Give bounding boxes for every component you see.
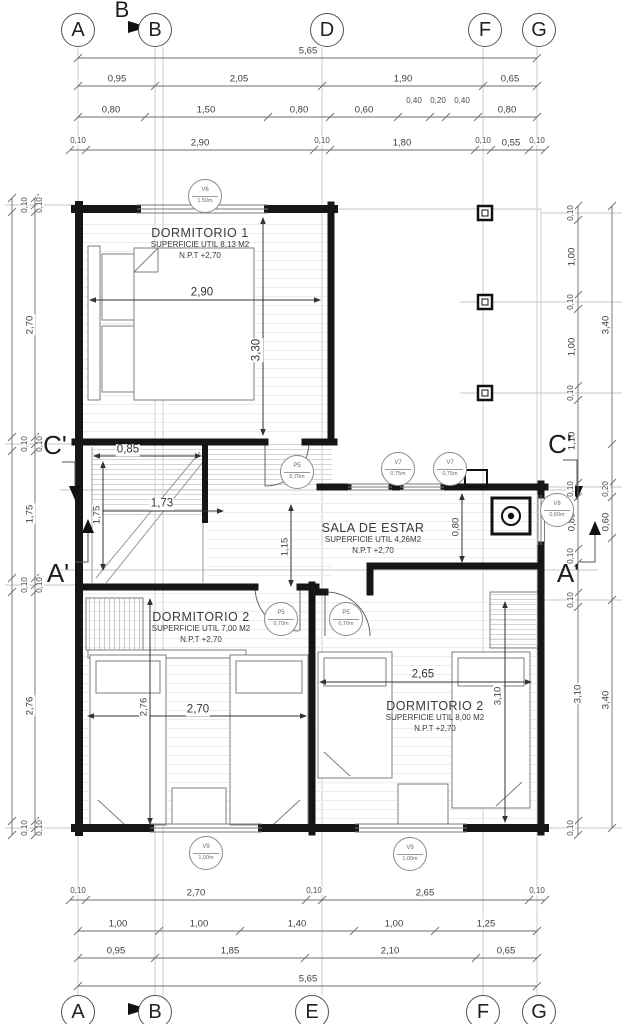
room-label-line: SUPERFICIE UTIL 7,00 M2 [152, 624, 250, 634]
dim-label: 3,10 [493, 686, 503, 707]
dim-label: 3,40 [601, 690, 611, 711]
room-label-line: N.P.T +2,70 [152, 635, 250, 645]
dim-label: 0,20 [602, 480, 610, 498]
dim-label: 0,10 [474, 137, 492, 145]
room-label-dormitorio-2: DORMITORIO 2SUPERFICIE UTIL 7,00 M2N.P.T… [152, 610, 250, 644]
dim-label: 0,80 [451, 517, 461, 538]
section-marker-A: A' [47, 560, 69, 586]
grid-bubble-top-D: D [310, 13, 344, 47]
dim-label: 2,65 [411, 669, 435, 681]
opening-tag-V7: V70,75m [433, 452, 467, 486]
room-label-line: N.P.T +2,70 [322, 546, 425, 556]
dim-label: 2,70 [186, 888, 207, 898]
dim-label: 0,10 [69, 887, 87, 895]
dim-label: 0,10 [36, 576, 44, 594]
grid-bubble-bottom-E: E [295, 995, 329, 1024]
room-label-line: DORMITORIO 1 [151, 226, 249, 240]
opening-tag-V7: V70,75m [381, 452, 415, 486]
section-marker-C: C' [548, 431, 572, 457]
grid-bubble-top-A: A [61, 13, 95, 47]
opening-tag-V6: V61.50m [188, 179, 222, 213]
dim-label: 2,76 [139, 697, 149, 718]
dim-label: 2,65 [415, 888, 436, 898]
dim-label: 0,85 [116, 444, 140, 456]
dim-label: 5,65 [298, 46, 319, 56]
dim-label: 1,73 [150, 498, 174, 510]
room-label-line: SALA DE ESTAR [322, 521, 425, 535]
dim-label: 0,60 [601, 512, 611, 533]
room-label-line: N.P.T +2,70 [386, 724, 484, 734]
dim-label: 0,10 [21, 435, 29, 453]
dim-label: 0,10 [69, 137, 87, 145]
opening-tag-P5: P50,70m [264, 602, 298, 636]
dim-label: 1,50 [196, 105, 217, 115]
dim-label: 0,95 [107, 74, 128, 84]
opening-tag-V9: V91,00m [189, 836, 223, 870]
dim-label: 1,90 [393, 74, 414, 84]
dim-label: 0,10 [567, 293, 575, 311]
dim-label: 1,00 [108, 919, 129, 929]
dim-label: 1,25 [476, 919, 497, 929]
dim-label: 0,10 [305, 887, 323, 895]
dim-label: 0,40 [453, 97, 471, 105]
dim-label: 0,10 [567, 480, 575, 498]
grid-bubble-top-G: G [522, 13, 556, 47]
dim-label: 2,10 [380, 946, 401, 956]
dim-label: 0,10 [567, 384, 575, 402]
dim-label: 0,95 [106, 946, 127, 956]
room-label-line: N.P.T +2,70 [151, 251, 249, 261]
grid-bubble-bottom-B: B [138, 995, 172, 1024]
dim-label: 0,10 [313, 137, 331, 145]
dim-label: 2,70 [186, 704, 210, 716]
room-label-line: DORMITORIO 2 [386, 699, 484, 713]
grid-bubble-bottom-G: G [522, 995, 556, 1024]
dim-label: 1,15 [280, 537, 290, 558]
dim-label: 3,30 [251, 338, 263, 362]
grid-bubble-top-B: B [138, 13, 172, 47]
dim-label: 0,10 [567, 204, 575, 222]
dim-label: 1,85 [220, 946, 241, 956]
dim-label: 0,40 [405, 97, 423, 105]
dim-label: 3,10 [573, 684, 583, 705]
dim-label: 0,10 [567, 819, 575, 837]
dim-label: 0,10 [528, 137, 546, 145]
dim-label: 2,05 [229, 74, 250, 84]
room-label-line: SUPERFICIE UTIL 8,00 M2 [386, 713, 484, 723]
dim-label: 0,20 [429, 97, 447, 105]
room-label-line: SUPERFICIE UTIL 4,26M2 [322, 535, 425, 545]
opening-tag-P5: P50,70m [329, 602, 363, 636]
dim-label: 1,00 [567, 247, 577, 268]
dim-label: 1,80 [392, 138, 413, 148]
opening-tag-V9: V91,00m [393, 837, 427, 871]
dim-label: 0,10 [36, 819, 44, 837]
dim-label: 0,80 [497, 105, 518, 115]
dim-label: 2,76 [25, 696, 35, 717]
room-label-dormitorio-2: DORMITORIO 2SUPERFICIE UTIL 8,00 M2N.P.T… [386, 699, 484, 733]
dim-label: 0,10 [21, 819, 29, 837]
grid-bubble-top-F: F [468, 13, 502, 47]
dim-label: 5,65 [298, 974, 319, 984]
room-label-line: DORMITORIO 2 [152, 610, 250, 624]
dim-label: 0,55 [501, 138, 522, 148]
dim-label: 0,65 [500, 74, 521, 84]
dim-label: 0,80 [101, 105, 122, 115]
opening-tag-P5: P50,70m [280, 455, 314, 489]
dim-label: 0,80 [289, 105, 310, 115]
labels-layer: B 5,650,952,051,900,650,801,500,800,600,… [0, 0, 628, 1024]
section-b-label: B [115, 0, 130, 21]
floor-plan-canvas: B 5,650,952,051,900,650,801,500,800,600,… [0, 0, 628, 1024]
dim-label: 0,65 [496, 946, 517, 956]
room-label-dormitorio-1: DORMITORIO 1SUPERFICIE UTIL 8,13 M2N.P.T… [151, 226, 249, 260]
dim-label: 0,10 [36, 196, 44, 214]
dim-label: 0,10 [21, 196, 29, 214]
opening-tag-V8: V80,60m [540, 493, 574, 527]
grid-bubble-bottom-F: F [466, 995, 500, 1024]
dim-label: 1,75 [92, 505, 102, 526]
dim-label: 0,10 [21, 576, 29, 594]
dim-label: 2,90 [190, 138, 211, 148]
dim-label: 3,40 [601, 315, 611, 336]
dim-label: 1,00 [567, 337, 577, 358]
room-label-line: SUPERFICIE UTIL 8,13 M2 [151, 240, 249, 250]
dim-label: 1,40 [287, 919, 308, 929]
dim-label: 0,60 [354, 105, 375, 115]
grid-bubble-bottom-A: A [61, 995, 95, 1024]
dim-label: 2,90 [190, 287, 214, 299]
dim-label: 1,00 [189, 919, 210, 929]
dim-label: 1,00 [384, 919, 405, 929]
room-label-sala-de-estar: SALA DE ESTARSUPERFICIE UTIL 4,26M2N.P.T… [322, 521, 425, 555]
section-marker-A: A' [557, 560, 579, 586]
dim-label: 0,10 [528, 887, 546, 895]
dim-label: 0,10 [567, 591, 575, 609]
section-marker-C: C' [43, 432, 67, 458]
dim-label: 1,75 [25, 504, 35, 525]
dim-label: 2,70 [25, 315, 35, 336]
